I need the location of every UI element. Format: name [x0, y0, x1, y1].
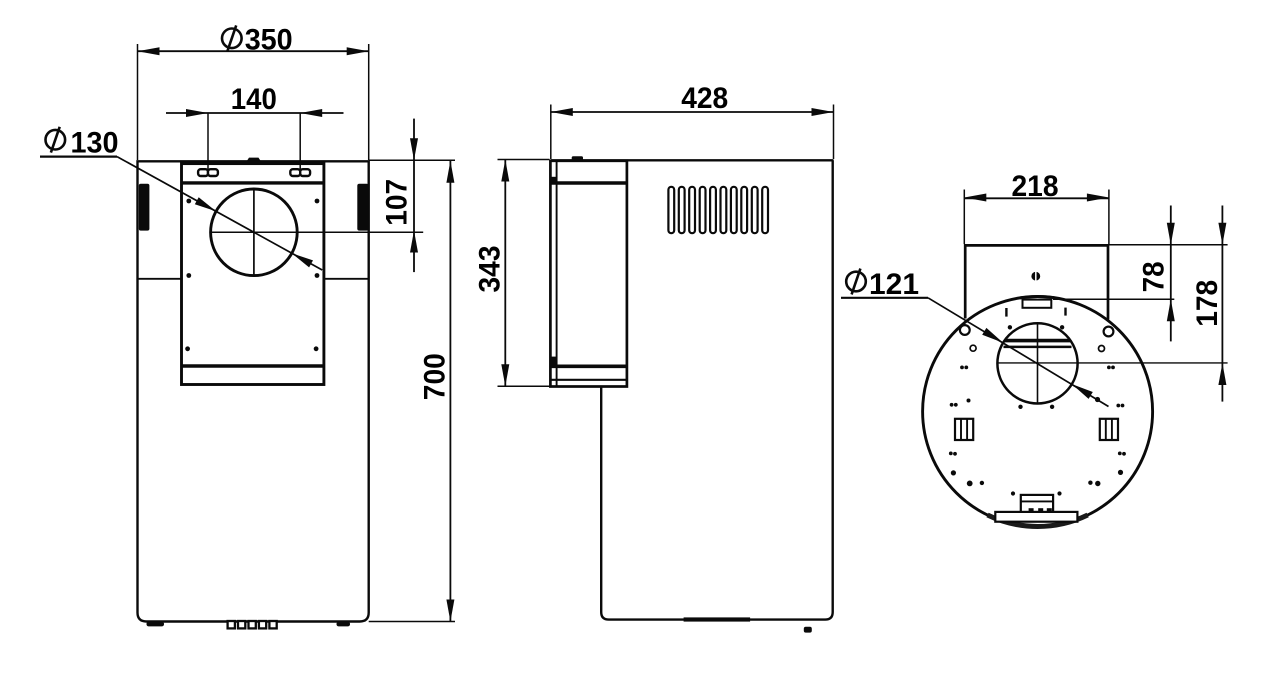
- svg-text:343: 343: [474, 246, 507, 293]
- svg-text:140: 140: [231, 83, 277, 116]
- svg-text:107: 107: [381, 179, 414, 226]
- svg-text:78: 78: [1138, 261, 1171, 292]
- svg-text:121: 121: [869, 268, 919, 301]
- svg-text:178: 178: [1191, 280, 1224, 327]
- svg-text:428: 428: [681, 82, 728, 115]
- svg-text:350: 350: [245, 23, 293, 56]
- svg-text:700: 700: [419, 353, 452, 400]
- svg-text:130: 130: [71, 127, 119, 160]
- svg-text:218: 218: [1012, 170, 1059, 203]
